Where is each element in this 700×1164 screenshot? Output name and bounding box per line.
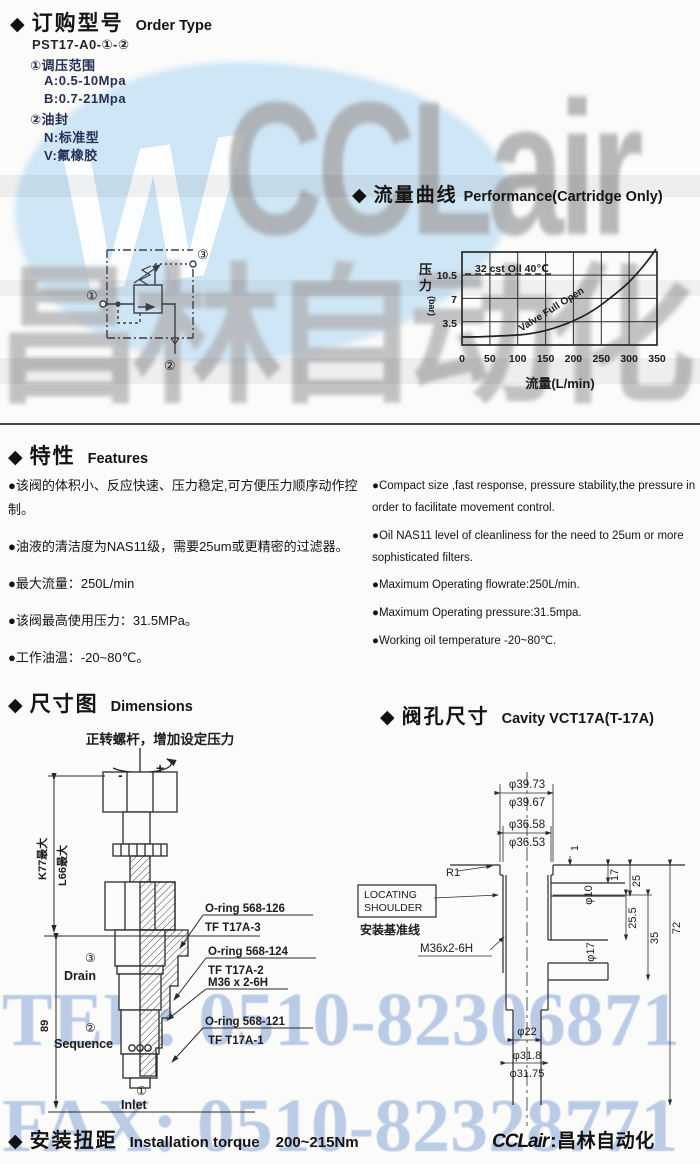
diamond-icon: ◆ xyxy=(8,446,23,469)
port3-num: ③ xyxy=(85,951,96,965)
dim-l-label: L66最大 xyxy=(55,845,69,886)
dimensions-title-zh: 尺寸图 xyxy=(30,688,99,718)
datasheet-page: W CCLair 昌林自动化 TEL: 0510-82306871 FAX: 0… xyxy=(0,0,700,1164)
port1-label: ① xyxy=(86,288,98,303)
dim-d397-max: φ39.73 xyxy=(509,779,545,791)
order-type-title: ◆ 订购型号 Order Type xyxy=(10,7,212,37)
port3-label: ③ xyxy=(197,247,209,262)
dim-r1: R1 xyxy=(446,867,460,879)
features-list-zh: ●该阀的体积小、反应快速、压力稳定,可方便压力顺序动作控制。 ●油液的清洁度为N… xyxy=(8,474,364,683)
svg-text:350: 350 xyxy=(648,353,666,365)
locating-label-1: LOCATING xyxy=(364,889,417,901)
features-list-en: ●Compact size ,fast response, pressure s… xyxy=(372,476,696,659)
torque-title-en: Installation torque xyxy=(130,1134,260,1151)
dim-35: 35 xyxy=(649,932,661,944)
order-type-title-zh: 订购型号 xyxy=(32,7,124,37)
dim-25: 25 xyxy=(631,875,643,887)
features-title-zh: 特性 xyxy=(30,440,76,470)
plus-sign: + xyxy=(156,760,164,776)
dimensions-title: ◆ 尺寸图 Dimensions xyxy=(8,688,193,718)
feature-item: ●该阀的体积小、反应快速、压力稳定,可方便压力顺序动作控制。 xyxy=(8,474,364,522)
y-axis-label-char: 压 xyxy=(419,262,432,277)
valve-outline xyxy=(103,748,188,1088)
x-axis-label: 流量(L/min) xyxy=(525,376,594,391)
diamond-icon: ◆ xyxy=(8,1130,23,1153)
port3-name: Drain xyxy=(64,969,96,983)
diamond-icon: ◆ xyxy=(10,13,25,36)
performance-chart: 32 cst Oil 40℃ Valve Full Open 10.5 7 3.… xyxy=(405,238,700,403)
port1-num: ① xyxy=(136,1084,147,1098)
locating-label-2: SHOULDER xyxy=(364,902,423,914)
torque-title-zh: 安装扭距 xyxy=(30,1124,118,1153)
section-divider xyxy=(0,423,700,425)
feature-item: ●Working oil temperature -20~80℃. xyxy=(372,631,696,653)
dim-k-label: K77最大 xyxy=(35,838,49,880)
feature-item: ●该阀最高使用压力：31.5MPa。 xyxy=(8,609,364,633)
feature-item: ●油液的清洁度为NAS11级，需要25um或更精密的过滤器。 xyxy=(8,535,364,559)
svg-text:0: 0 xyxy=(459,353,465,365)
order-option: ①调压范围 xyxy=(30,55,96,74)
callout-thread: M36 x 2-6H xyxy=(208,977,268,989)
features-title-en: Features xyxy=(88,451,148,467)
feature-item: ●Maximum Operating flowrate:250L/min. xyxy=(372,575,696,597)
order-option: B:0.7-21Mpa xyxy=(44,91,126,106)
chart-note: 32 cst Oil 40℃ xyxy=(475,263,549,275)
schematic-lines xyxy=(100,250,196,354)
order-option: V:氟橡胶 xyxy=(44,145,98,164)
performance-title-zh: 流量曲线 xyxy=(374,180,458,207)
dim-17: 17 xyxy=(609,869,621,881)
dim-25-5: 25.5 xyxy=(627,907,639,928)
minus-sign: - xyxy=(118,767,123,783)
cavity-title-zh: 阀孔尺寸 xyxy=(402,700,490,729)
feature-item: ●Oil NAS11 level of cleanliness for the … xyxy=(372,526,696,570)
feature-item: ●Compact size ,fast response, pressure s… xyxy=(372,476,696,520)
y-axis-unit: (bar) xyxy=(427,296,437,316)
dim-depth1: 1 xyxy=(569,845,581,851)
dim-d3175: φ31.75 xyxy=(510,1068,545,1080)
port1-name: Inlet xyxy=(121,1098,148,1112)
cavity-title: ◆ 阀孔尺寸 Cavity VCT17A(T-17A) xyxy=(380,700,654,729)
order-option: A:0.5-10Mpa xyxy=(44,73,126,88)
svg-text:300: 300 xyxy=(620,353,638,365)
port2-num: ② xyxy=(85,1021,96,1035)
callout-cavity4: TF T17A-1 xyxy=(208,1035,264,1047)
feature-item: ●工作油温：-20~80℃。 xyxy=(8,646,364,670)
port2-label: ② xyxy=(164,358,176,373)
y-axis-label-char: 力 xyxy=(419,278,432,293)
model-code: PST17-A0-①-② xyxy=(32,37,129,53)
cavity-outline xyxy=(450,865,685,1105)
datum-label: 安装基准线 xyxy=(360,922,420,937)
hydraulic-schematic: ① ② ③ xyxy=(78,242,303,392)
footer-brand: CCLair:昌林自动化 xyxy=(492,1126,655,1153)
y-tick: 7 xyxy=(451,294,457,306)
dim-d318: φ31.8 xyxy=(513,1050,542,1062)
y-tick: 3.5 xyxy=(442,318,457,330)
svg-text:250: 250 xyxy=(593,353,611,365)
dim-total-label: 89 xyxy=(39,1020,51,1032)
port2-name: Sequence xyxy=(54,1037,113,1051)
callout-oring2: O-ring 568-124 xyxy=(208,946,288,958)
curve-label: Valve Full Open xyxy=(517,285,586,334)
dim-d365-max: φ36.58 xyxy=(509,819,545,831)
features-title: ◆ 特性 Features xyxy=(8,440,148,470)
dim-d365-min: φ36.53 xyxy=(509,837,545,849)
footer-brand-name: CCLair xyxy=(492,1131,548,1152)
svg-text:200: 200 xyxy=(565,353,583,365)
adjust-note: 正转螺杆，增加设定压力 xyxy=(86,731,235,747)
svg-text:150: 150 xyxy=(537,353,555,365)
cavity-title-en: Cavity VCT17A(T-17A) xyxy=(502,711,654,727)
dimensions-drawing: 正转螺杆，增加设定压力 - + xyxy=(20,718,350,1143)
feature-item: ●最大流量：250L/min xyxy=(8,572,364,596)
callout-cavity2: TF T17A-2 xyxy=(208,965,264,977)
junction-dot xyxy=(115,301,120,306)
callout-oring1: O-ring 568-126 xyxy=(205,903,285,915)
svg-text:100: 100 xyxy=(509,353,527,365)
performance-title-en: Performance(Cartridge Only) xyxy=(464,189,663,205)
dimensions-title-en: Dimensions xyxy=(111,699,193,715)
diamond-icon: ◆ xyxy=(380,706,395,729)
callout-cavity1: TF T17A-3 xyxy=(205,922,261,934)
order-option: N:标准型 xyxy=(44,127,99,146)
x-ticks: 0 50 100 150 200 250 300 350 xyxy=(459,353,666,365)
feature-item: ●Maximum Operating pressure:31.5mpa. xyxy=(372,603,696,625)
diamond-icon: ◆ xyxy=(352,184,367,207)
callout-oring4: O-ring 568-121 xyxy=(205,1016,285,1028)
y-tick: 10.5 xyxy=(437,270,458,282)
torque-title: ◆ 安装扭距 Installation torque 200~215Nm xyxy=(8,1124,359,1153)
cavity-drawing: φ39.73 φ39.67 φ36.58 φ36.53 R1 1 φ10 17 … xyxy=(340,738,700,1143)
dim-d397-min: φ39.67 xyxy=(509,797,545,809)
thread-label: M36x2-6H xyxy=(420,943,473,955)
brand-watermark: CCLair xyxy=(224,74,638,264)
dim-72: 72 xyxy=(671,922,683,934)
dim-d17: φ17 xyxy=(585,942,597,961)
order-option: ②油封 xyxy=(30,109,69,128)
order-type-title-en: Order Type xyxy=(136,18,212,34)
svg-text:50: 50 xyxy=(484,353,496,365)
diamond-icon: ◆ xyxy=(8,694,23,717)
torque-value: 200~215Nm xyxy=(276,1134,359,1151)
performance-title: ◆ 流量曲线 Performance(Cartridge Only) xyxy=(352,180,663,207)
footer-company-name: 昌林自动化 xyxy=(557,1131,655,1152)
dim-d10: φ10 xyxy=(583,885,595,904)
dim-d22: φ22 xyxy=(517,1026,536,1038)
